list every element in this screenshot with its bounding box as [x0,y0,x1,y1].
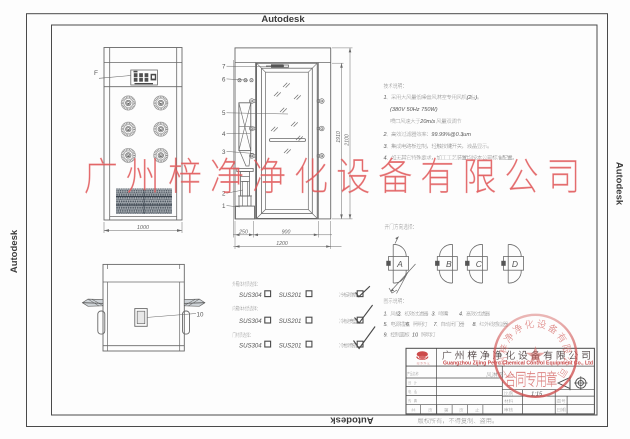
svg-text:SUS201: SUS201 [279,318,302,325]
svg-text:1: 1 [222,203,226,210]
svg-text:1: 1 [384,95,387,101]
svg-text:4: 4 [222,131,226,138]
svg-text:5: 5 [222,110,226,117]
svg-text:Autodesk: Autodesk [330,415,374,426]
svg-text:Autodesk: Autodesk [261,14,305,25]
svg-text:900: 900 [282,229,291,235]
svg-text:3: 3 [222,149,226,156]
svg-text:1200: 1200 [276,241,288,247]
svg-text:250: 250 [238,229,248,235]
svg-text:D: D [512,259,518,269]
svg-text:SUS304: SUS304 [239,292,262,299]
svg-text:2: 2 [383,132,387,138]
svg-text:A: A [396,259,403,269]
svg-text:F: F [94,70,98,77]
svg-text:2100: 2100 [344,134,350,147]
svg-text:SUS304: SUS304 [239,318,262,325]
svg-text:7: 7 [222,64,226,71]
svg-text:99.99%@0.3um: 99.99%@0.3um [431,132,471,138]
svg-text:10: 10 [412,333,418,339]
svg-text:C: C [476,259,483,269]
svg-text:Autodesk: Autodesk [9,229,20,273]
svg-text:2: 2 [397,312,401,318]
svg-text:(2: (2 [467,95,472,101]
svg-text:Autodesk: Autodesk [614,162,625,206]
svg-text:6: 6 [222,76,226,83]
svg-text:): ) [474,95,477,101]
svg-text:20m/s: 20m/s [419,119,435,125]
svg-text:1000: 1000 [137,225,150,231]
svg-text:4: 4 [384,156,387,162]
svg-text:SUS304: SUS304 [239,343,262,350]
svg-text:SUS201: SUS201 [279,292,302,299]
svg-text:SUS201: SUS201 [279,343,302,350]
svg-text:(380V 50Hz 750W): (380V 50Hz 750W) [390,107,438,113]
svg-text:1910: 1910 [336,131,342,143]
svg-text:10: 10 [197,312,204,319]
svg-text:B: B [446,259,452,269]
svg-text:Guangzhou Zijing Petro Chemica: Guangzhou Zijing Petro Chemical Control … [443,361,593,367]
